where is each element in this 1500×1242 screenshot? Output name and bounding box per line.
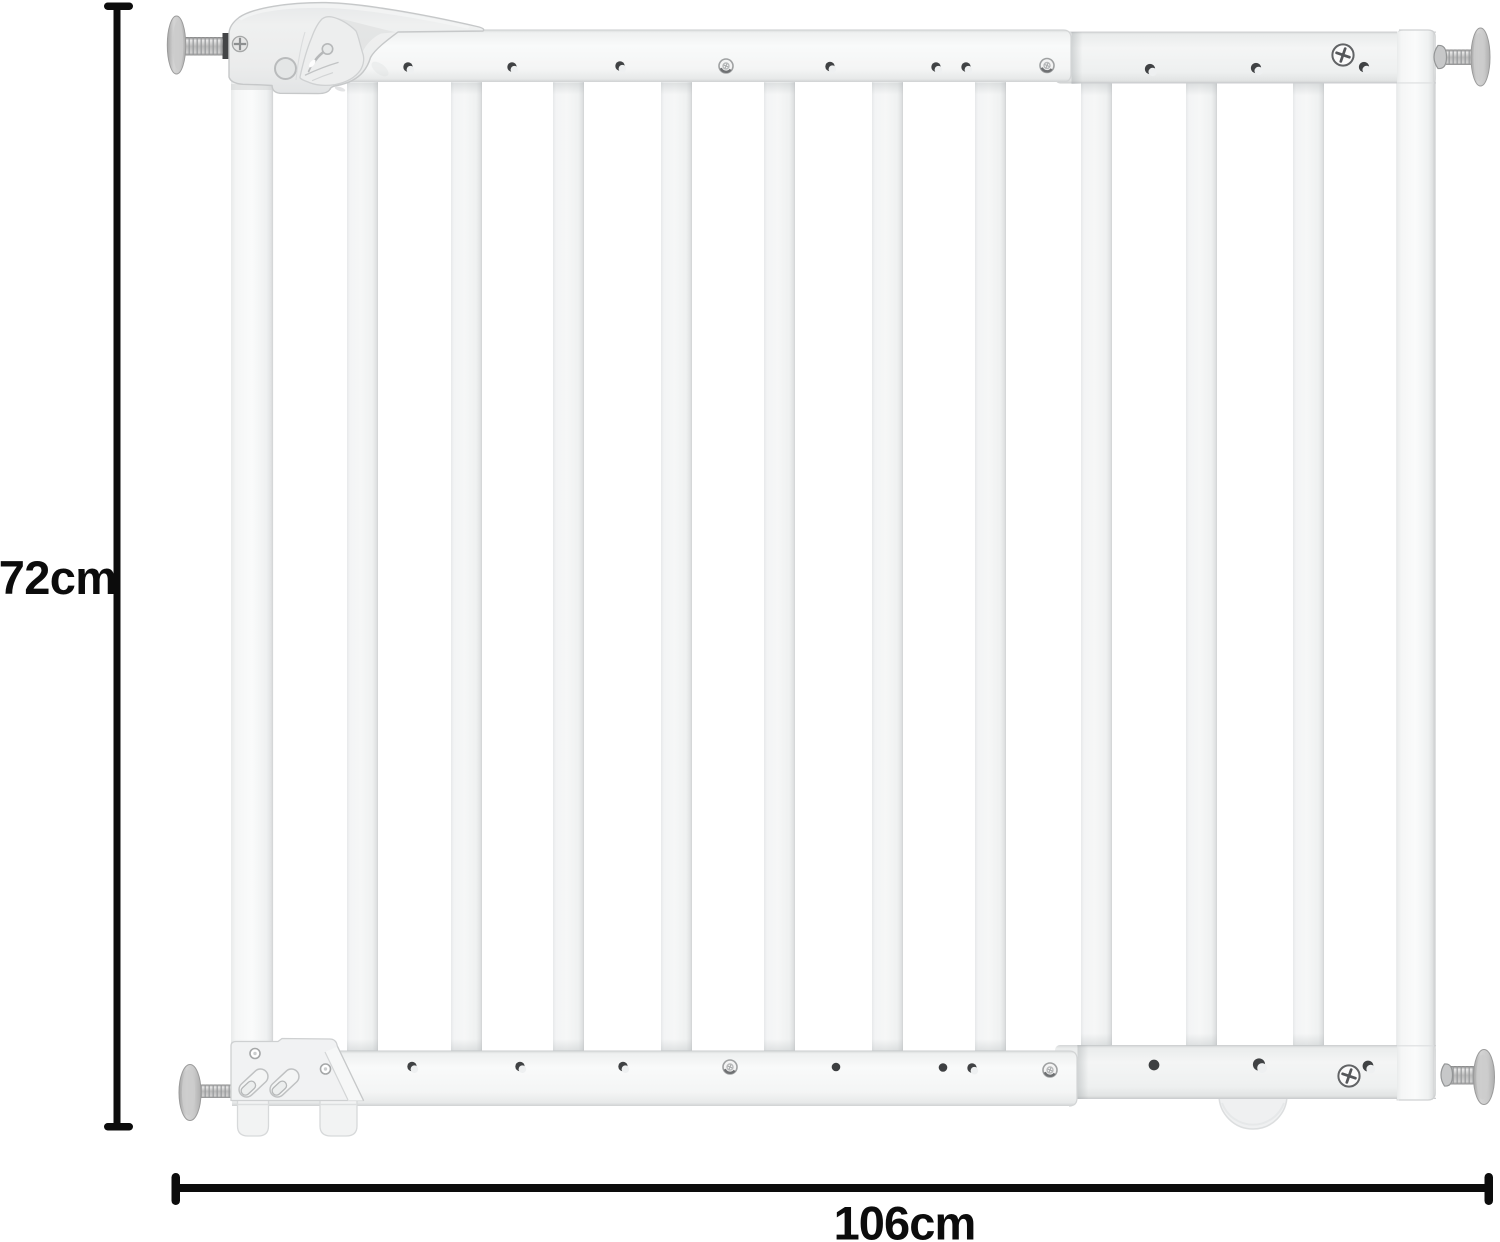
svg-text:72cm: 72cm (0, 551, 117, 604)
svg-text:106cm: 106cm (834, 1197, 976, 1242)
